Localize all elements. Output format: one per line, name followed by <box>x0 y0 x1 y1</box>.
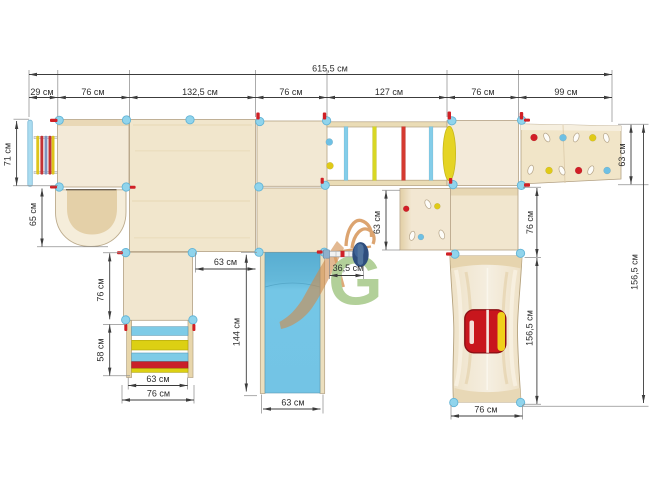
svg-text:615,5 см: 615,5 см <box>312 64 348 74</box>
svg-text:63 см: 63 см <box>372 211 382 234</box>
svg-text:76 см: 76 см <box>81 87 104 97</box>
svg-text:144 см: 144 см <box>232 318 242 346</box>
svg-text:76 см: 76 см <box>474 405 497 415</box>
svg-text:71 см: 71 см <box>3 143 13 166</box>
svg-text:63 см: 63 см <box>617 143 627 166</box>
svg-text:63 см: 63 см <box>146 374 169 384</box>
svg-text:65 см: 65 см <box>28 203 38 226</box>
svg-text:132,5 см: 132,5 см <box>182 87 218 97</box>
svg-text:156,5 см: 156,5 см <box>630 254 640 290</box>
svg-text:29 см: 29 см <box>30 87 53 97</box>
svg-text:156,5 см: 156,5 см <box>524 310 534 346</box>
svg-text:63 см: 63 см <box>281 398 304 408</box>
svg-text:76 см: 76 см <box>279 87 302 97</box>
svg-text:76 см: 76 см <box>147 389 170 399</box>
svg-text:76 см: 76 см <box>96 278 106 301</box>
svg-text:36,5 см: 36,5 см <box>333 263 364 273</box>
svg-text:63 см: 63 см <box>214 257 237 267</box>
svg-text:76 см: 76 см <box>525 211 535 234</box>
svg-text:58 см: 58 см <box>96 338 106 361</box>
svg-text:76 см: 76 см <box>471 87 494 97</box>
svg-text:99 см: 99 см <box>554 87 577 97</box>
svg-text:127 см: 127 см <box>375 87 403 97</box>
